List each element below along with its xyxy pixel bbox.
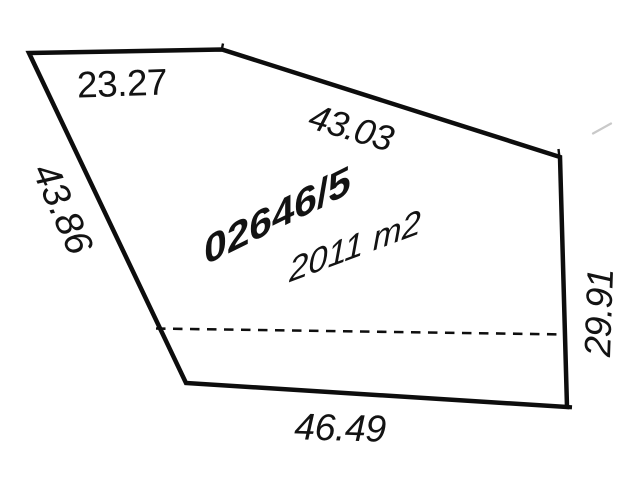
svg-text:43.03: 43.03 bbox=[304, 96, 398, 160]
svg-text:23.27: 23.27 bbox=[76, 61, 167, 105]
svg-text:43.86: 43.86 bbox=[23, 157, 100, 262]
svg-text:46.49: 46.49 bbox=[294, 405, 387, 449]
svg-text:29.91: 29.91 bbox=[577, 269, 621, 359]
